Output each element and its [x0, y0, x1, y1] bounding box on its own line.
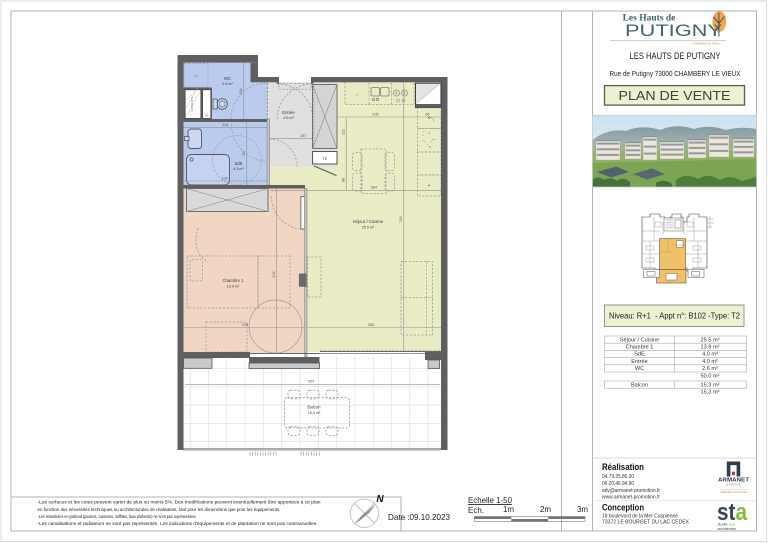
svg-text:Balcon: Balcon — [631, 383, 648, 389]
svg-text:WC: WC — [224, 76, 231, 81]
svg-text:66: 66 — [425, 112, 429, 116]
svg-text:Chambre 1: Chambre 1 — [626, 345, 654, 351]
svg-text:13.9 m²: 13.9 m² — [227, 285, 240, 289]
svg-text:25.5 m²: 25.5 m² — [362, 226, 375, 230]
svg-text:2m: 2m — [540, 505, 551, 514]
svg-text:857: 857 — [308, 380, 314, 384]
svg-text:LL: LL — [194, 74, 198, 78]
svg-text:318: 318 — [242, 323, 248, 327]
svg-text:2.6 m²: 2.6 m² — [222, 82, 233, 86]
svg-text:LV: LV — [355, 93, 358, 97]
svg-text:PUTIGNY: PUTIGNY — [625, 22, 722, 40]
svg-text:Séjour / Cuisine: Séjour / Cuisine — [620, 337, 660, 343]
svg-text:224: 224 — [221, 176, 227, 180]
svg-text:50.0 m²: 50.0 m² — [701, 374, 720, 380]
svg-text:Echelle 1-50: Echelle 1-50 — [468, 495, 512, 505]
svg-text:2.6 m²: 2.6 m² — [702, 366, 718, 372]
svg-text:WC: WC — [635, 366, 644, 372]
svg-text:Conception: Conception — [602, 503, 644, 513]
svg-text:Date :09.10.2023: Date :09.10.2023 — [388, 512, 450, 522]
svg-text:LES HAUTS DE PUTIGNY: LES HAUTS DE PUTIGNY — [630, 51, 721, 62]
svg-text:-Les canalisations et radiateu: -Les canalisations et radiateurs ne sont… — [38, 521, 318, 527]
svg-text:www.armanet-promotion.fr: www.armanet-promotion.fr — [602, 495, 660, 501]
svg-text:Balcon: Balcon — [307, 405, 321, 410]
svg-text:15.3 m²: 15.3 m² — [701, 390, 720, 396]
svg-text:SdE: SdE — [234, 161, 242, 166]
svg-text:Entrée: Entrée — [282, 110, 295, 115]
svg-text:90: 90 — [242, 151, 246, 155]
svg-text:Chambéry le Vieux: Chambéry le Vieux — [691, 41, 720, 45]
svg-text:N: N — [376, 494, 384, 505]
svg-text:15.3 m²: 15.3 m² — [701, 383, 720, 389]
svg-text:-Les retombées en plafond (pou: -Les retombées en plafond (poutres, cais… — [38, 514, 197, 520]
svg-text:Rue de Putigny 73000 CHAMBERY: Rue de Putigny 73000 CHAMBERY LE VIEUX — [610, 69, 741, 78]
svg-text:25.5 m²: 25.5 m² — [701, 337, 720, 343]
svg-text:15.3 m²: 15.3 m² — [308, 411, 321, 415]
svg-text:73372 LE BOURGET DU LAC CEDEX: 73372 LE BOURGET DU LAC CEDEX — [602, 520, 689, 526]
svg-text:3m: 3m — [577, 505, 588, 514]
svg-text:224: 224 — [222, 123, 228, 127]
svg-text:architectes: architectes — [718, 527, 736, 531]
svg-text:L'IMMOBILIER EN TOUTE CONFIANC: L'IMMOBILIER EN TOUTE CONFIANCE — [720, 491, 747, 494]
svg-text:13.9 m²: 13.9 m² — [701, 345, 720, 351]
svg-text:221: 221 — [342, 129, 346, 135]
svg-text:Entrée: Entrée — [631, 359, 647, 365]
svg-text:205: 205 — [372, 112, 378, 116]
svg-text:06.20.46.94.90: 06.20.46.94.90 — [602, 481, 634, 487]
svg-text:187: 187 — [300, 134, 306, 138]
svg-text:& ASSOCIÉ: & ASSOCIÉ — [727, 483, 741, 486]
svg-text:1m: 1m — [503, 505, 514, 514]
svg-text:adv@armanet-promotion.fr: adv@armanet-promotion.fr — [602, 488, 660, 494]
svg-text:96: 96 — [342, 178, 346, 182]
svg-text:Séjour / Cuisine: Séjour / Cuisine — [353, 219, 384, 224]
svg-text:20: 20 — [205, 114, 209, 118]
svg-text:4.6 m²: 4.6 m² — [283, 116, 294, 120]
svg-text:Ech.: Ech. — [468, 506, 484, 515]
svg-text:TE: TE — [323, 157, 328, 161]
svg-text:04.79.35.80.30: 04.79.35.80.30 — [602, 474, 634, 480]
svg-text:154: 154 — [239, 88, 243, 94]
svg-text:354: 354 — [368, 323, 374, 327]
svg-text:422: 422 — [272, 271, 276, 277]
svg-text:B-GT50 40 71: B-GT50 40 71 — [191, 96, 194, 112]
svg-text:740: 740 — [399, 216, 403, 222]
svg-text:studio sud: studio sud — [718, 523, 735, 527]
svg-text:4.3 m²: 4.3 m² — [233, 167, 244, 171]
svg-text:4.0 m²: 4.0 m² — [702, 359, 718, 365]
svg-text:Niveau: R+1 - Appt n°: B102 -: Niveau: R+1 - Appt n°: B102 -Type: T2 — [609, 311, 740, 321]
svg-text:PLAN DE VENTE: PLAN DE VENTE — [619, 88, 731, 103]
svg-text:4.0 m²: 4.0 m² — [702, 352, 718, 358]
svg-text:SdE: SdE — [634, 352, 645, 358]
svg-text:en fonction des nécessités tec: en fonction des nécessités techniques ou… — [38, 507, 281, 513]
svg-text:-Les surfaces et les cotes peu: -Les surfaces et les cotes peuvent varie… — [38, 500, 321, 506]
svg-text:364: 364 — [371, 186, 377, 190]
svg-text:Réalisation: Réalisation — [602, 462, 644, 472]
svg-text:Chambre 1: Chambre 1 — [222, 278, 244, 283]
